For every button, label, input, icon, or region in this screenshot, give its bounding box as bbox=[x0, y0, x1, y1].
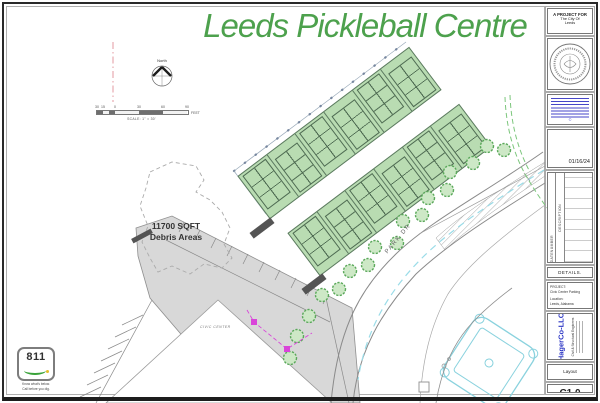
engineer-seal-box bbox=[547, 38, 593, 90]
civic-center-label: CIVIC CENTER bbox=[200, 325, 231, 329]
call-811-logo: 811 Know what's below. Call before you d… bbox=[13, 347, 59, 391]
sheet-number-box: C1.0 Sheet 1 Of xx bbox=[547, 384, 593, 393]
disclaimer-box: © bbox=[547, 94, 593, 125]
site-overlay bbox=[0, 0, 600, 403]
scale-bar-segments bbox=[96, 110, 189, 115]
call-811-number: 811 bbox=[19, 351, 53, 363]
project-info-box: PROJECT: Civic Center Parking Location: … bbox=[547, 282, 593, 309]
firm-address-block bbox=[577, 321, 586, 353]
engineer-seal-icon bbox=[548, 39, 592, 89]
scale-tick-labels: 30 15 0 30 60 90 bbox=[96, 105, 208, 110]
revision-table: NUMBER DATE DESCRIPTION bbox=[547, 172, 593, 263]
details-label-box: DETAILS. bbox=[547, 267, 593, 278]
project-for-box: A PROJECT FOR The City Of Leeds bbox=[547, 8, 593, 34]
scale-caption: SCALE: 1" = 30' bbox=[96, 117, 187, 121]
revision-rows bbox=[565, 177, 592, 262]
sheet-number: C1.0 bbox=[548, 388, 592, 393]
revision-col-description: DESCRIPTION bbox=[556, 173, 565, 262]
issue-date: 01/16/24 bbox=[569, 159, 590, 165]
copyright-mark: © bbox=[548, 118, 592, 122]
firm-logo-box: HagerCo-LLC Civil & Structural Engineers bbox=[547, 313, 593, 360]
disclaimer-text-block bbox=[551, 98, 589, 118]
street-trees bbox=[284, 140, 511, 365]
project-name: Civic Center Parking bbox=[550, 290, 590, 295]
north-arrow: North bbox=[147, 58, 177, 94]
sheet-title-box: Layout bbox=[547, 364, 593, 380]
call-811-tagline: Know what's below. Call before you dig. bbox=[13, 382, 59, 391]
location-value: Leeds, Alabama bbox=[550, 302, 590, 307]
plan-sheet: 11700 SQFT Debris Areas PARK DR CIVIC CE… bbox=[0, 0, 600, 403]
title-block: A PROJECT FOR The City Of Leeds © 01/16/… bbox=[546, 6, 594, 395]
firm-subtitle: Civil & Structural Engineers bbox=[571, 317, 575, 356]
revision-col-number-date: NUMBER DATE bbox=[548, 173, 556, 262]
call-811-swoosh bbox=[24, 366, 46, 375]
call-811-dot bbox=[46, 370, 49, 373]
date-box: 01/16/24 bbox=[547, 129, 593, 168]
scale-unit-label: FEET bbox=[191, 111, 200, 115]
firm-name: HagerCo-LLC bbox=[557, 313, 566, 360]
north-arrow-icon bbox=[149, 63, 175, 89]
page-title: Leeds Pickleball Centre bbox=[195, 7, 535, 45]
scale-bar: 30 15 0 30 60 90 FEET SCALE: 1" = 30' bbox=[96, 105, 208, 121]
debris-area-label: 11700 SQFT Debris Areas bbox=[134, 221, 218, 242]
call-811-icon: 811 bbox=[17, 347, 55, 381]
